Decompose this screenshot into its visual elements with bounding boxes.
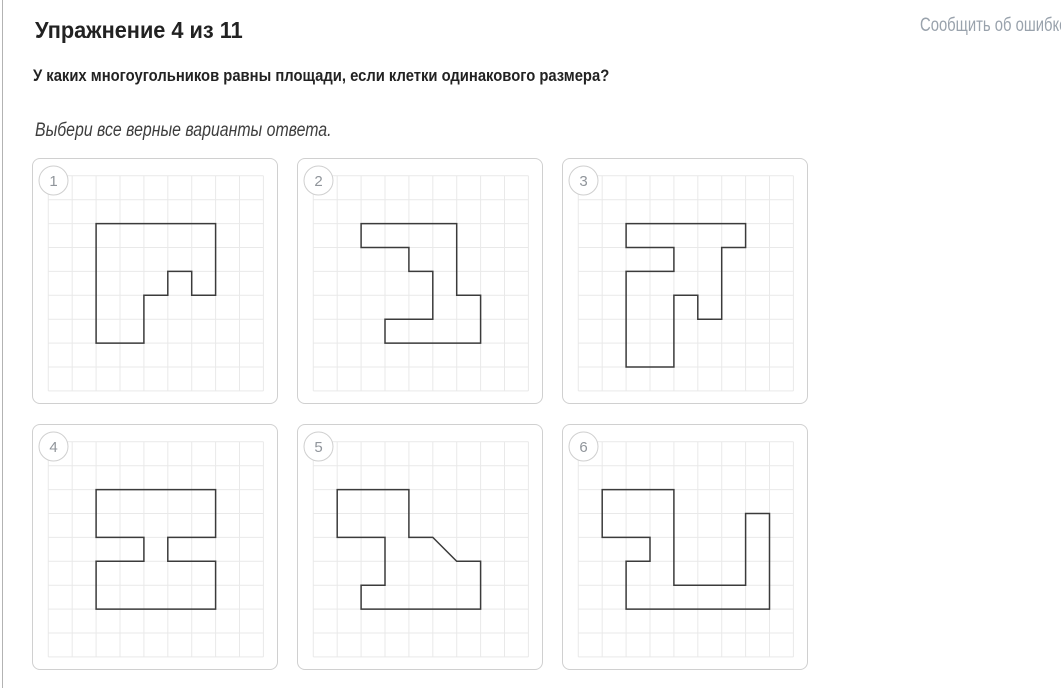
- svg-text:3: 3: [579, 173, 587, 190]
- svg-text:4: 4: [49, 439, 57, 456]
- svg-text:1: 1: [49, 173, 57, 190]
- svg-text:2: 2: [314, 173, 322, 190]
- svg-text:6: 6: [579, 439, 587, 456]
- svg-text:5: 5: [314, 439, 322, 456]
